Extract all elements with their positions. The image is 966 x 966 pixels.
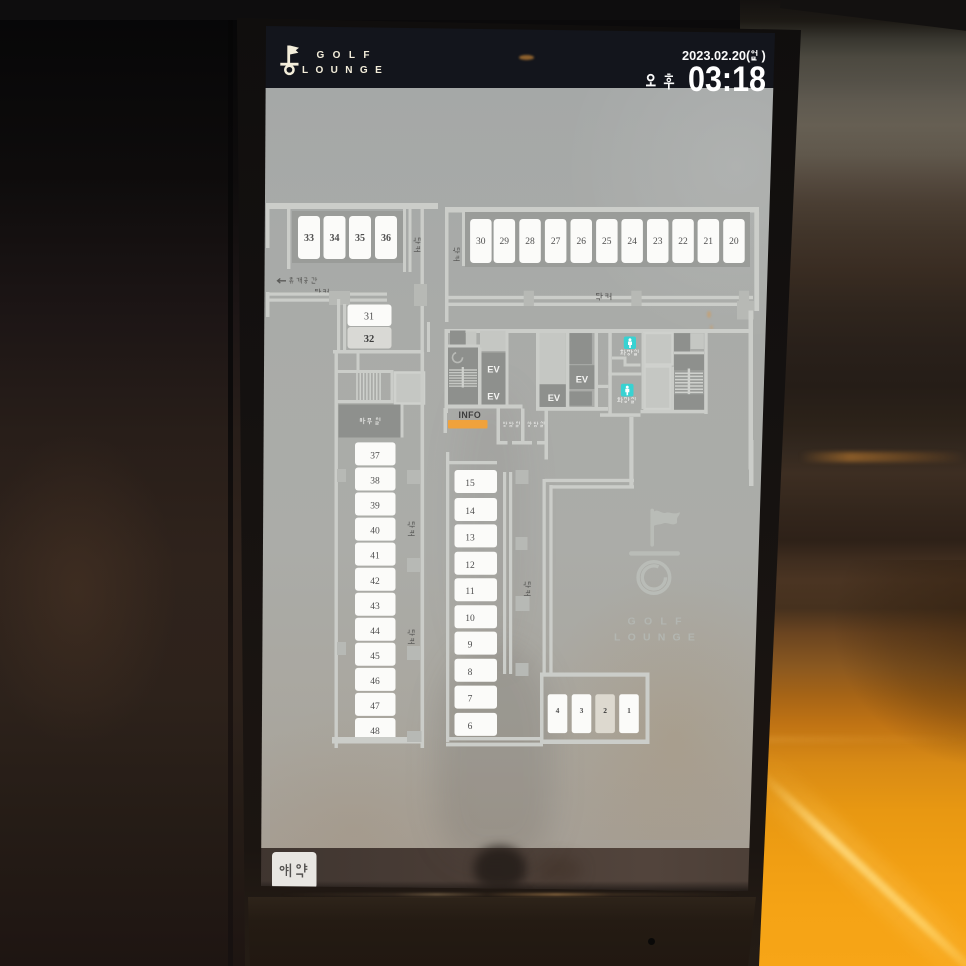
svg-text:46: 46 — [370, 677, 380, 687]
svg-text:30: 30 — [476, 237, 486, 247]
svg-text:45: 45 — [370, 652, 380, 662]
svg-text:24: 24 — [627, 237, 637, 247]
svg-text:40: 40 — [370, 527, 380, 537]
svg-text:22: 22 — [678, 237, 688, 247]
svg-text:35: 35 — [355, 233, 365, 244]
svg-text:LOUNGE: LOUNGE — [302, 65, 389, 76]
svg-text:4: 4 — [556, 706, 560, 715]
svg-text:33: 33 — [304, 233, 314, 244]
svg-text:25: 25 — [602, 237, 612, 247]
svg-text:INFO: INFO — [459, 410, 482, 420]
svg-text:36: 36 — [381, 233, 391, 244]
svg-text:GOLF: GOLF — [317, 50, 378, 61]
svg-text:EV: EV — [548, 393, 561, 403]
svg-text:27: 27 — [551, 237, 561, 247]
svg-text:EV: EV — [487, 392, 500, 402]
svg-text:GOLF: GOLF — [628, 616, 690, 628]
svg-text:LOUNGE: LOUNGE — [614, 632, 702, 644]
svg-text:14: 14 — [465, 507, 475, 517]
svg-text:38: 38 — [370, 477, 380, 487]
svg-text:13: 13 — [465, 533, 475, 543]
svg-text:39: 39 — [370, 502, 380, 512]
svg-text:43: 43 — [370, 602, 380, 612]
svg-text:42: 42 — [370, 577, 380, 587]
svg-text:41: 41 — [370, 552, 380, 562]
svg-text:29: 29 — [500, 237, 510, 247]
svg-text:48: 48 — [370, 727, 380, 737]
svg-text:12: 12 — [465, 561, 475, 571]
svg-text:31: 31 — [364, 312, 374, 323]
svg-text:1: 1 — [627, 706, 631, 715]
svg-text:15: 15 — [465, 479, 475, 489]
svg-text:2: 2 — [603, 706, 607, 715]
svg-text:EV: EV — [487, 365, 500, 375]
svg-text:32: 32 — [364, 334, 375, 345]
svg-text:21: 21 — [704, 237, 714, 247]
svg-text:26: 26 — [576, 237, 586, 247]
svg-text:20: 20 — [729, 237, 739, 247]
svg-text:10: 10 — [465, 614, 475, 624]
svg-text:23: 23 — [653, 237, 663, 247]
svg-text:47: 47 — [370, 702, 380, 712]
svg-text:28: 28 — [525, 237, 535, 247]
svg-text:34: 34 — [330, 233, 340, 244]
svg-text:37: 37 — [370, 452, 380, 462]
svg-text:03:18: 03:18 — [688, 60, 766, 99]
svg-text:3: 3 — [580, 706, 584, 715]
svg-text:9: 9 — [468, 641, 473, 651]
svg-text:7: 7 — [468, 695, 473, 705]
svg-text:EV: EV — [576, 375, 589, 385]
svg-text:11: 11 — [465, 587, 474, 597]
svg-text:44: 44 — [370, 627, 380, 637]
svg-text:6: 6 — [468, 722, 473, 732]
svg-text:8: 8 — [468, 668, 473, 678]
